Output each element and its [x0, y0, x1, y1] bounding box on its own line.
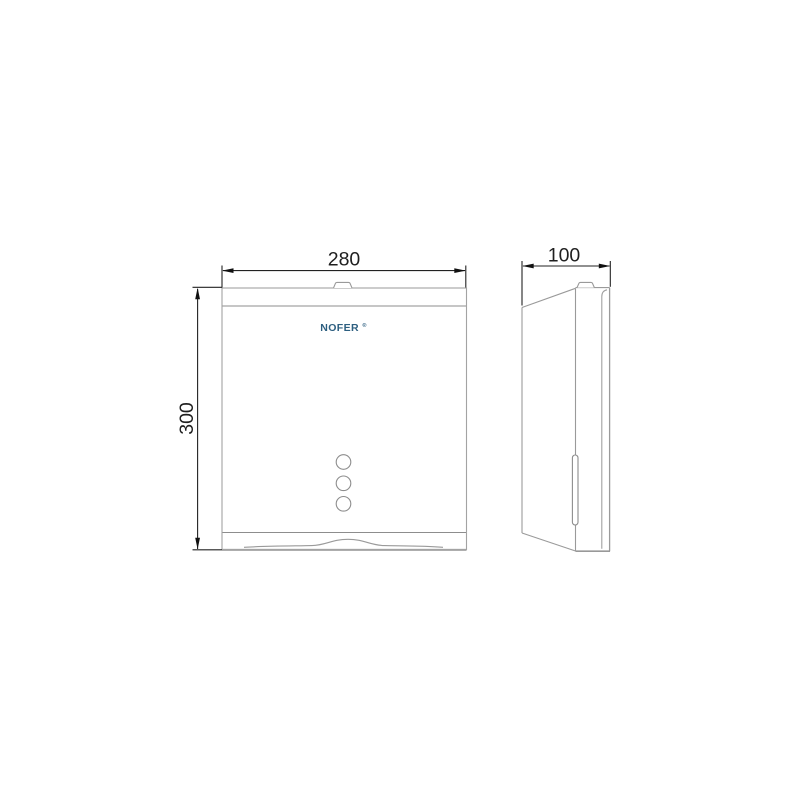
side-bottom-slant	[522, 533, 576, 551]
arrowhead-up	[195, 288, 200, 300]
indicator-circle	[336, 455, 351, 470]
arrowhead-down	[195, 538, 200, 550]
indicator-circles	[336, 455, 351, 511]
width-dimension-label: 280	[328, 249, 361, 271]
height-dimension: 300	[176, 287, 222, 550]
indicator-circle	[336, 476, 351, 491]
side-top-slant	[522, 288, 576, 307]
arrowhead-left	[522, 264, 534, 269]
brand-logo-mark: ®	[362, 322, 366, 329]
brand-logo: NOFER ®	[320, 322, 367, 334]
brand-logo-text: NOFER	[320, 322, 359, 334]
depth-dimension-label: 100	[548, 245, 581, 267]
side-view	[522, 282, 610, 551]
drawing-canvas: NOFER ® 280	[0, 0, 800, 800]
depth-dimension: 100	[522, 245, 610, 306]
height-dimension-label: 300	[176, 402, 198, 435]
arrowhead-right	[454, 268, 466, 273]
width-dimension: 280	[222, 249, 466, 288]
mounting-notch	[334, 282, 353, 288]
arrowhead-right	[599, 264, 611, 269]
side-mounting-tab	[577, 282, 594, 287]
technical-drawing: NOFER ® 280	[0, 0, 800, 800]
side-cover-inner-line	[602, 290, 607, 549]
arrowhead-left	[222, 268, 234, 273]
indicator-circle	[336, 497, 351, 512]
front-view: NOFER ®	[222, 282, 467, 550]
side-slot	[572, 455, 578, 525]
